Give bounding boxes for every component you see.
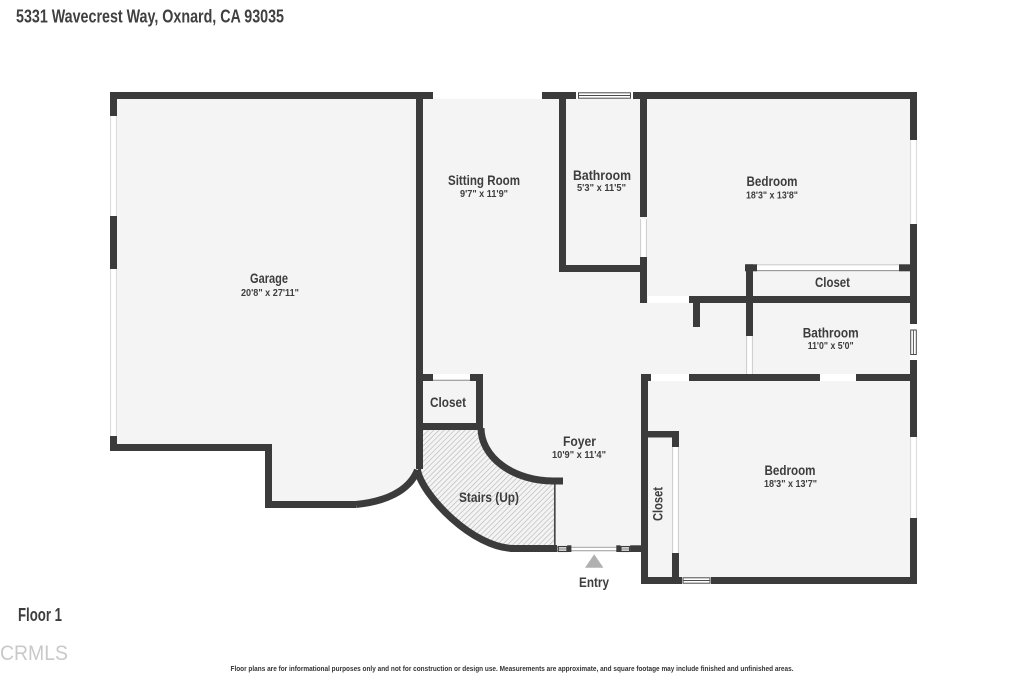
svg-text:18'3" x 13'7": 18'3" x 13'7" [764,479,817,490]
svg-text:Bedroom: Bedroom [747,173,798,189]
svg-text:11'0" x 5'0": 11'0" x 5'0" [808,341,854,352]
svg-text:Garage: Garage [250,270,288,286]
svg-text:10'9" x 11'4": 10'9" x 11'4" [552,450,606,461]
svg-text:Closet: Closet [650,487,666,521]
svg-text:Bathroom: Bathroom [573,167,631,183]
svg-text:20'8" x 27'11": 20'8" x 27'11" [241,288,299,299]
svg-text:9'7" x 11'9": 9'7" x 11'9" [460,189,508,200]
svg-text:Foyer: Foyer [563,433,596,449]
svg-text:Entry: Entry [579,574,609,590]
svg-text:Floor plans are for informatio: Floor plans are for informational purpos… [231,664,794,673]
svg-text:Floor 1: Floor 1 [18,605,62,625]
svg-text:5'3" x 11'5": 5'3" x 11'5" [577,183,626,194]
svg-text:5331 Wavecrest Way, Oxnard, CA: 5331 Wavecrest Way, Oxnard, CA 93035 [16,6,284,27]
svg-text:18'3" x 13'8": 18'3" x 13'8" [746,191,798,202]
svg-text:Closet: Closet [430,394,466,410]
svg-text:Bedroom: Bedroom [765,462,816,478]
svg-text:Bathroom: Bathroom [803,325,859,341]
svg-text:CRMLS: CRMLS [0,642,68,665]
svg-text:Sitting Room: Sitting Room [448,172,520,188]
svg-text:Stairs (Up): Stairs (Up) [459,489,519,505]
svg-text:Closet: Closet [815,274,850,290]
